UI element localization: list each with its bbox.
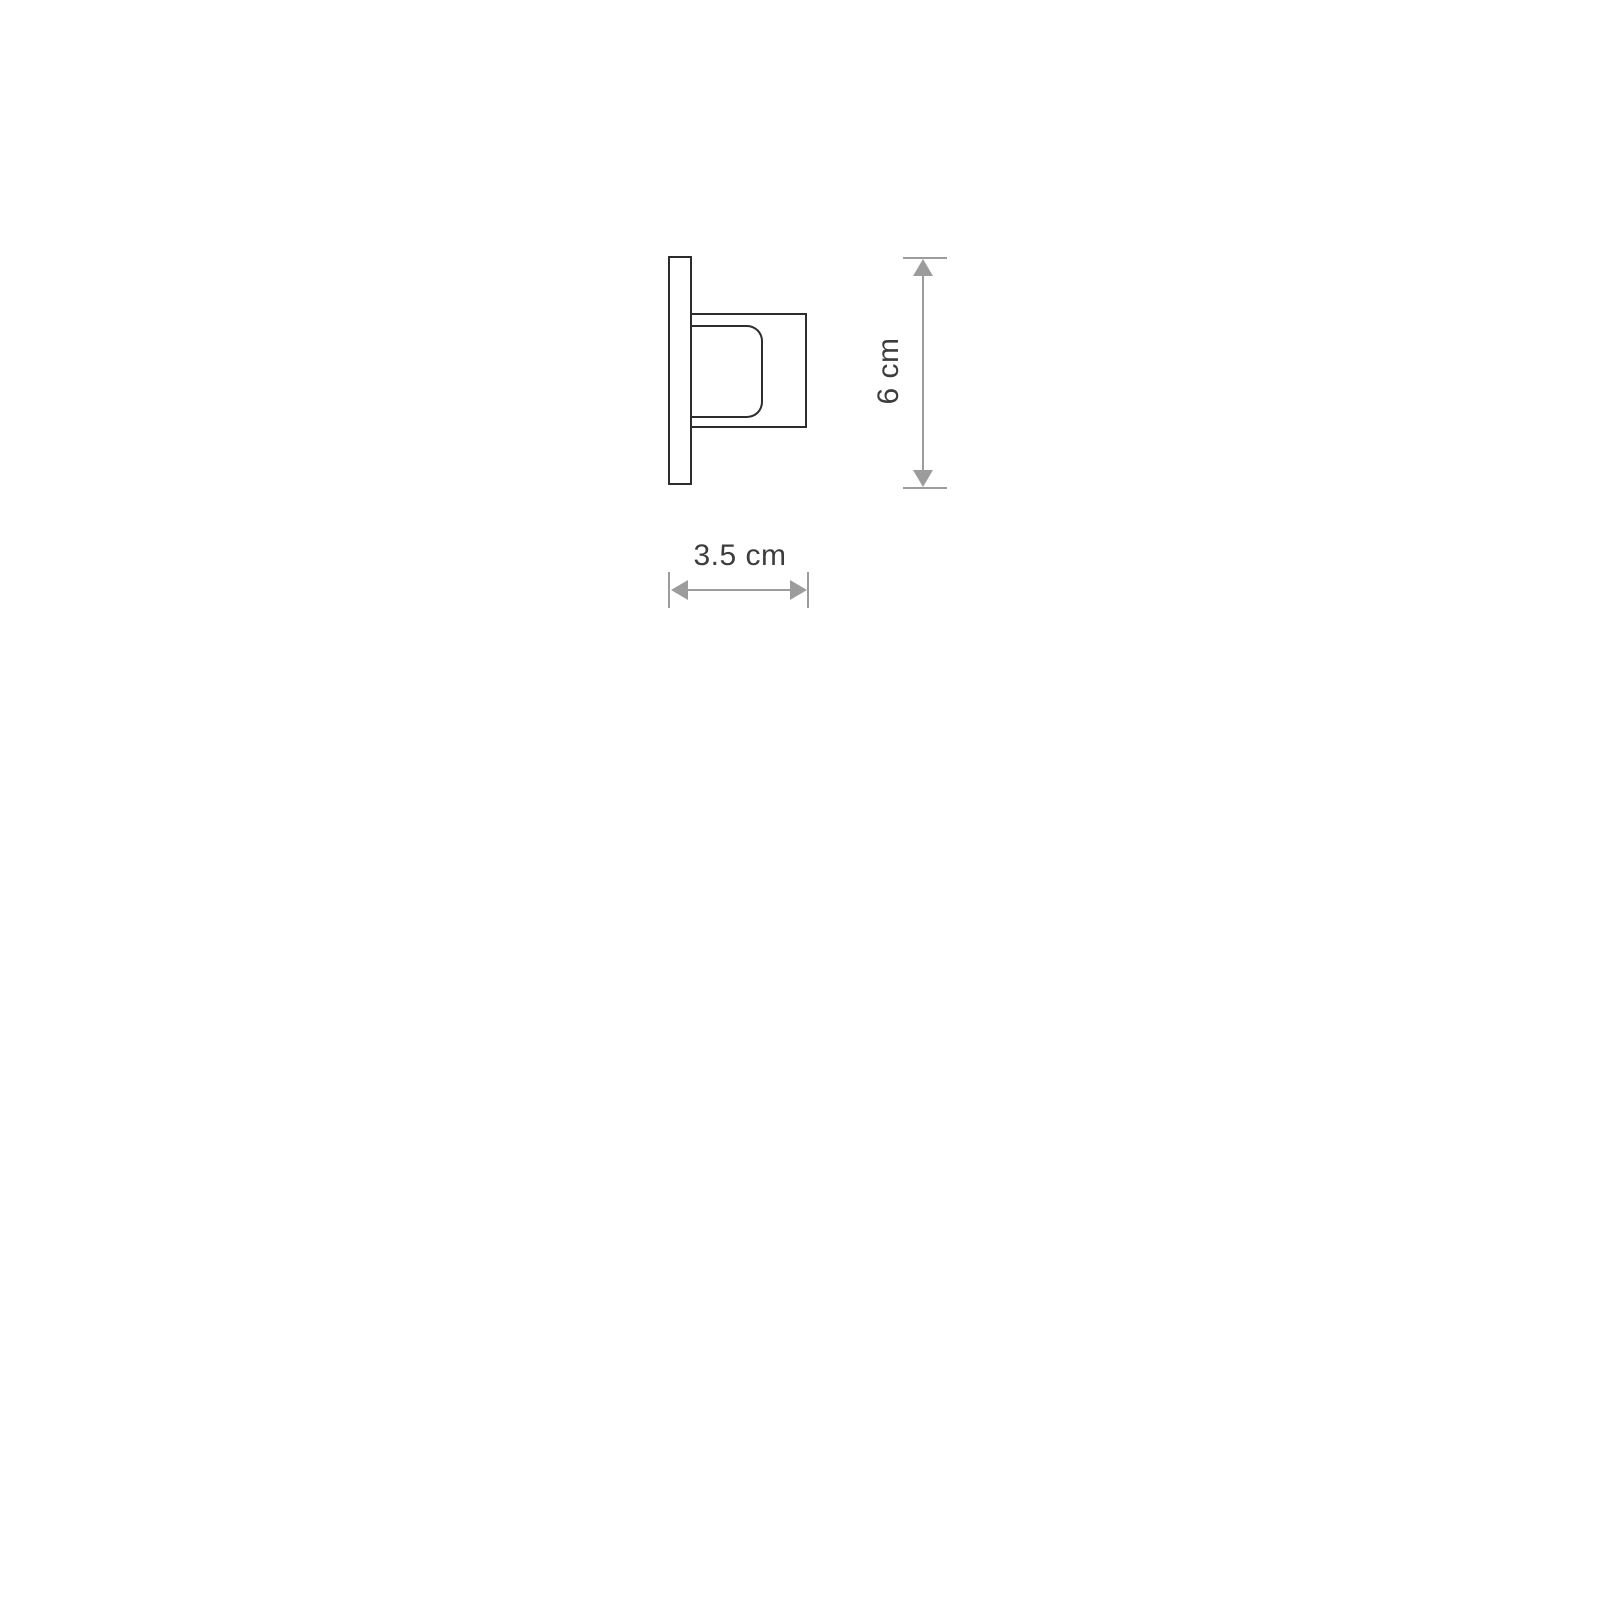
depth-dimension-line (674, 589, 804, 591)
depth-dimension-left-tick (668, 572, 670, 608)
arrow-up-icon (913, 259, 933, 276)
height-dimension-label: 6 cm (872, 337, 906, 404)
height-dimension-bottom-tick (903, 487, 947, 489)
wall-plate-profile (668, 256, 692, 485)
depth-dimension-label: 3.5 cm (693, 539, 786, 573)
fixture-body-inner-contour (692, 325, 763, 418)
arrow-right-icon (790, 580, 807, 600)
arrow-down-icon (913, 470, 933, 487)
dimension-diagram: 6 cm 3.5 cm (0, 0, 1600, 1600)
depth-dimension-right-tick (807, 572, 809, 608)
height-dimension-line (922, 262, 924, 484)
arrow-left-icon (671, 580, 688, 600)
